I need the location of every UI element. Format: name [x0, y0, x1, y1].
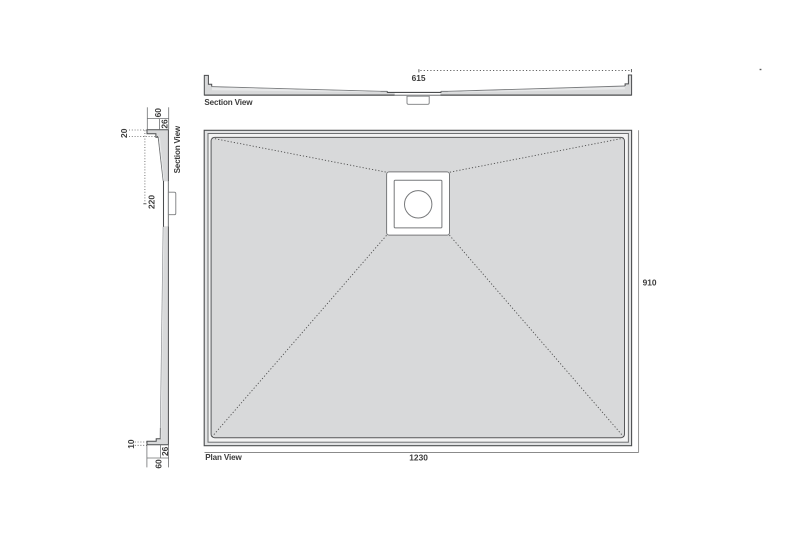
svg-text:220: 220 [147, 195, 157, 209]
svg-text:Section View: Section View [173, 125, 182, 173]
svg-text:60: 60 [153, 459, 163, 469]
svg-text:615: 615 [412, 73, 426, 83]
svg-text:10: 10 [126, 439, 136, 449]
svg-text:1230: 1230 [409, 452, 428, 462]
svg-text:26: 26 [159, 119, 169, 129]
svg-text:Plan View: Plan View [205, 453, 242, 462]
svg-text:60: 60 [153, 108, 163, 118]
svg-text:26: 26 [160, 446, 170, 456]
svg-text:Section View: Section View [204, 98, 253, 107]
svg-text:910: 910 [643, 277, 657, 287]
svg-text:20: 20 [119, 128, 129, 138]
